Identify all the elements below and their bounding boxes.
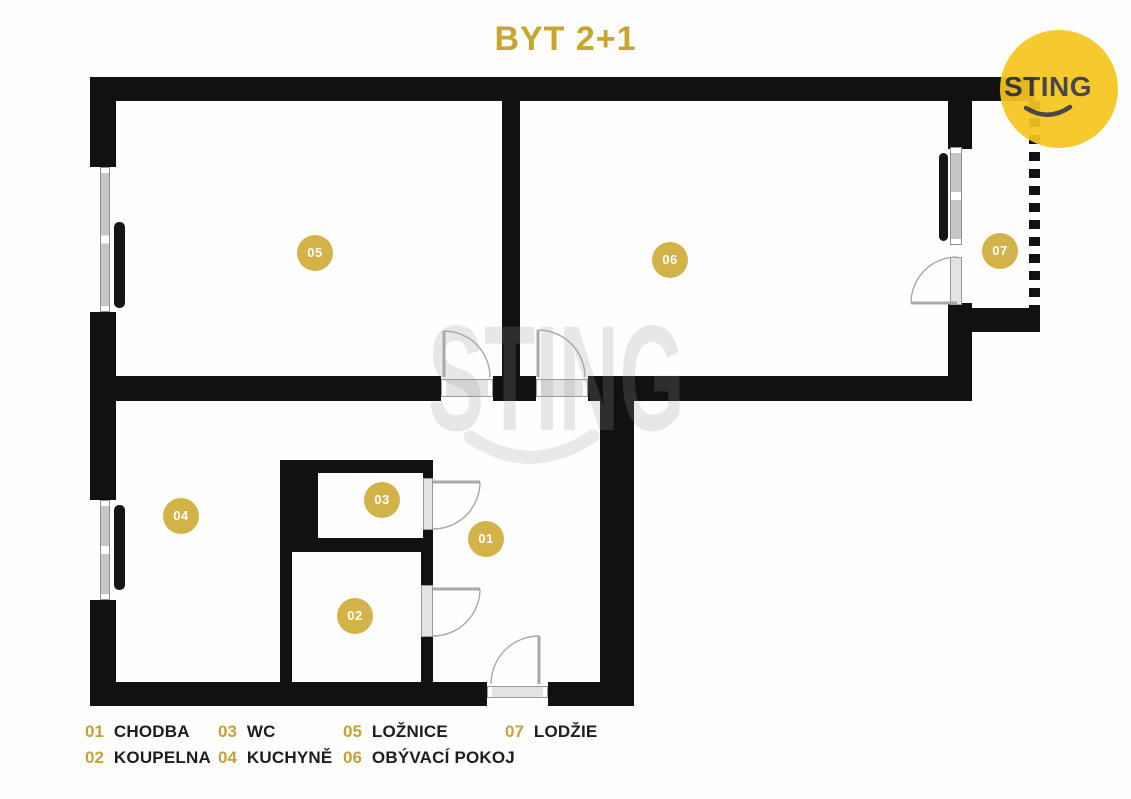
legend-room-number: 02 — [85, 748, 104, 767]
door-swing — [538, 330, 585, 377]
legend-item: 01CHODBA — [85, 722, 190, 742]
legend-room-label: CHODBA — [114, 722, 190, 741]
legend-room-number: 01 — [85, 722, 104, 741]
smile-icon — [1022, 104, 1074, 122]
door-threshold — [487, 686, 548, 698]
legend-item: 06OBÝVACÍ POKOJ — [343, 748, 515, 768]
wall — [290, 538, 433, 552]
legend-room-number: 03 — [218, 722, 237, 741]
door-threshold — [950, 257, 962, 305]
radiator — [114, 222, 125, 308]
wall — [90, 77, 1035, 101]
legend-room-number: 04 — [218, 748, 237, 767]
room-badge-01: 01 — [468, 521, 504, 557]
sting-logo-text: STING — [989, 71, 1107, 103]
door-swing — [433, 589, 480, 636]
door-threshold — [423, 478, 433, 530]
window — [100, 500, 110, 600]
wall — [421, 637, 433, 682]
legend-item: 02KOUPELNA — [85, 748, 211, 768]
wall — [116, 376, 441, 401]
wall — [280, 552, 292, 682]
wall — [90, 682, 487, 706]
legend-room-number: 06 — [343, 748, 362, 767]
room-badge-02: 02 — [337, 598, 373, 634]
legend-room-number: 05 — [343, 722, 362, 741]
wall — [948, 101, 972, 149]
wall — [588, 376, 972, 401]
radiator — [939, 153, 948, 241]
window — [950, 147, 962, 245]
room-badge-03: 03 — [364, 482, 400, 518]
wall — [600, 378, 634, 706]
page-title: BYT 2+1 — [0, 20, 1131, 59]
legend-room-label: WC — [247, 722, 276, 741]
floor-plan-image: BYT 2+1 — [0, 0, 1131, 799]
window — [100, 167, 110, 312]
wall — [421, 552, 433, 585]
room-badge-07: 07 — [982, 233, 1018, 269]
door-threshold — [441, 379, 493, 397]
watermark-smile — [470, 436, 593, 457]
door-threshold — [536, 379, 588, 397]
legend-item: 05LOŽNICE — [343, 722, 448, 742]
legend-room-label: KUCHYNĚ — [247, 748, 332, 767]
legend-room-label: LODŽIE — [534, 722, 598, 741]
wall — [90, 312, 116, 500]
legend-item: 07LODŽIE — [505, 722, 597, 742]
legend-room-label: LOŽNICE — [372, 722, 448, 741]
door-swing — [444, 331, 490, 377]
door-swing — [491, 636, 539, 684]
door-swing — [433, 482, 480, 529]
radiator — [114, 505, 125, 590]
wall — [90, 77, 116, 167]
legend-room-label: KOUPELNA — [114, 748, 211, 767]
legend-room-number: 07 — [505, 722, 524, 741]
legend-room-label: OBÝVACÍ POKOJ — [372, 748, 515, 767]
room-badge-05: 05 — [297, 235, 333, 271]
legend-item: 03WC — [218, 722, 276, 742]
room-badge-06: 06 — [652, 242, 688, 278]
room-badge-04: 04 — [163, 498, 199, 534]
wall — [960, 308, 1040, 332]
legend-item: 04KUCHYNĚ — [218, 748, 332, 768]
sting-logo: STING — [1000, 30, 1118, 148]
door-threshold — [421, 585, 433, 637]
wall — [502, 101, 520, 380]
